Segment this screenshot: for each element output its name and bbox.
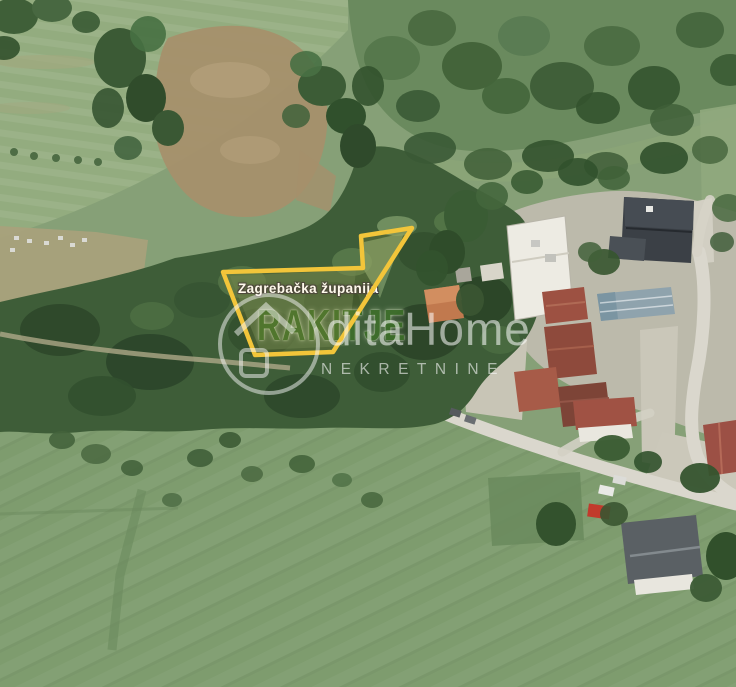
settlement-label: RAKITJE (257, 301, 407, 351)
county-label: Zagrebačka županija (238, 281, 378, 296)
satellite-map-image: Zagrebačka županija RAKITJE ditaHome NEK… (0, 0, 736, 687)
gray-roof-house-south (621, 515, 703, 595)
